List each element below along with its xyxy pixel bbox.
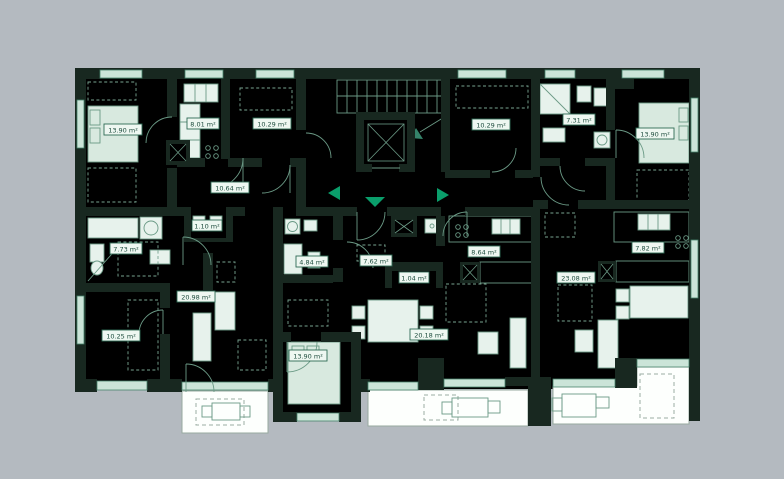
room-area-label: 10.25 m² [102,330,140,341]
room-area-label: 8.01 m² [187,118,219,129]
room-area-label: 10.29 m² [253,118,291,129]
svg-text:20.18 m²: 20.18 m² [414,332,444,340]
room-area-label: 1.10 m² [192,220,222,231]
room-area-label: 8.64 m² [468,246,500,257]
svg-text:10.29 m²: 10.29 m² [257,121,287,129]
svg-text:1.04 m²: 1.04 m² [401,275,427,283]
svg-text:8.01 m²: 8.01 m² [190,121,216,129]
room-area-label: 7.62 m² [360,255,392,266]
floor-plan-canvas: 13.90 m² 8.01 m² 10.29 m² 10.64 m² 1.10 … [0,0,784,479]
room-area-label: 10.64 m² [211,182,249,193]
room-area-label: 23.08 m² [557,272,595,283]
svg-text:7.62 m²: 7.62 m² [363,258,389,266]
svg-text:7.73 m²: 7.73 m² [113,246,139,254]
room-area-label: 13.90 m² [104,124,142,135]
svg-text:10.29 m²: 10.29 m² [476,122,506,130]
svg-text:8.64 m²: 8.64 m² [471,249,497,257]
room-area-label: 20.98 m² [177,291,215,302]
room-area-label: 7.31 m² [563,114,595,125]
svg-text:23.08 m²: 23.08 m² [561,275,591,283]
room-area-label: 7.82 m² [632,242,664,253]
svg-text:7.82 m²: 7.82 m² [635,245,661,253]
room-area-label: 1.04 m² [399,272,429,283]
svg-text:13.90 m²: 13.90 m² [640,131,670,139]
svg-text:13.90 m²: 13.90 m² [108,127,138,135]
svg-text:13.90 m²: 13.90 m² [293,353,323,361]
room-area-label: 13.90 m² [636,128,674,139]
svg-text:20.98 m²: 20.98 m² [181,294,211,302]
svg-text:7.31 m²: 7.31 m² [566,117,592,125]
svg-text:10.25 m²: 10.25 m² [106,333,136,341]
svg-text:1.10 m²: 1.10 m² [194,223,220,231]
room-area-label: 7.73 m² [110,243,142,254]
room-area-label: 4.84 m² [296,256,328,267]
svg-text:10.64 m²: 10.64 m² [215,185,245,193]
room-area-label: 20.18 m² [410,329,448,340]
floor-plan-drawing: 13.90 m² 8.01 m² 10.29 m² 10.64 m² 1.10 … [0,0,784,479]
room-area-label: 10.29 m² [472,119,510,130]
room-area-label: 13.90 m² [289,350,327,361]
svg-text:4.84 m²: 4.84 m² [299,259,325,267]
balcony [182,391,268,433]
